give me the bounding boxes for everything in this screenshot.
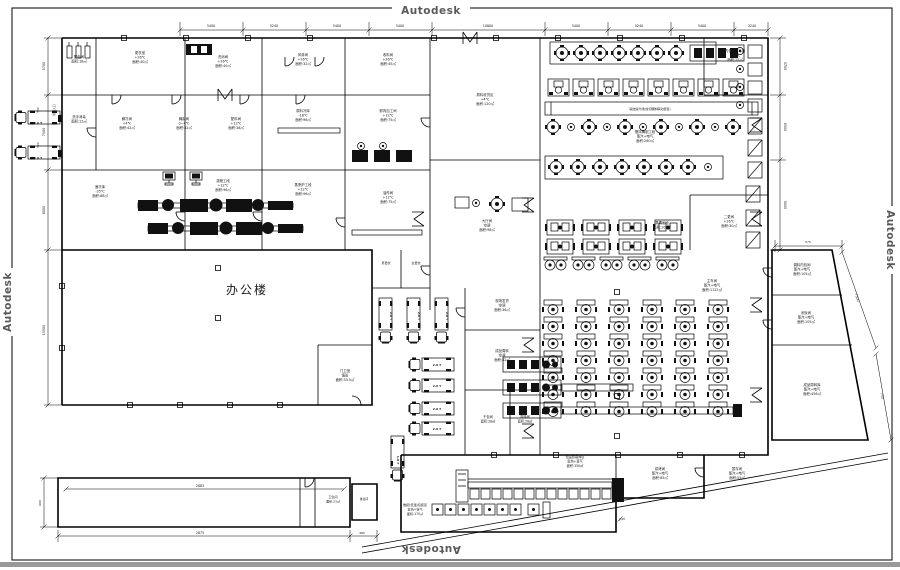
door: [421, 266, 430, 275]
mixer-machine: [673, 79, 694, 96]
dim: 7500: [854, 293, 861, 302]
double-door: [750, 298, 762, 312]
dim: 575: [805, 240, 811, 244]
crate: [528, 504, 539, 515]
room-label: 配料间+12℃面积:38㎡: [228, 116, 244, 130]
watermark-top: Autodesk: [401, 5, 461, 17]
dim: 750: [880, 393, 885, 399]
truck-label: 2.0 T: [34, 156, 43, 160]
crate: [445, 504, 456, 515]
sausage-line: [148, 222, 303, 236]
crate-tall: [543, 502, 550, 518]
crate: [484, 504, 495, 515]
wash-machine-detail: [201, 46, 207, 53]
room-label: 现场发货空调面积:36㎡: [494, 298, 510, 312]
production-columns: [542, 300, 729, 417]
doors: [87, 57, 772, 487]
spool-machine: [656, 257, 679, 270]
dim: 1685: [618, 517, 626, 522]
filling-lines: [503, 357, 742, 418]
room-label: 周转间面积:28㎡: [518, 414, 534, 424]
mixer-machine: [573, 79, 594, 96]
room-label: 烘烤间蒸汽+电气面积:85㎡: [652, 466, 669, 480]
double-door: [412, 212, 424, 226]
office-building-label: 办公楼: [226, 282, 268, 297]
cooker-unit: [581, 220, 611, 235]
truck-2t: [435, 298, 449, 344]
dim: 6500: [783, 123, 787, 131]
room-label: 干包间面积:28㎡: [481, 414, 497, 424]
crate: [458, 504, 469, 515]
processing-equipment: [67, 42, 528, 235]
door: [336, 218, 345, 227]
dock-bumper: [58, 150, 62, 157]
kettle-machine: [630, 45, 646, 61]
work-table: [278, 128, 340, 133]
truck-label: 2.0 T: [389, 312, 393, 321]
mixer-machine: [548, 79, 569, 96]
sausage-line: [138, 199, 293, 213]
dim: 500: [36, 107, 40, 113]
kettle-machine: [554, 45, 570, 61]
frying-machines: [352, 143, 412, 163]
dim: 7500: [42, 128, 46, 136]
truck-label: 1.0 T: [396, 456, 400, 465]
door: [285, 57, 294, 66]
dim: 9000: [783, 201, 787, 209]
kettle-machine: [614, 159, 630, 175]
spool-machine: [628, 257, 651, 270]
dock-label: 原料入口: [52, 104, 56, 115]
room-label: 原料收货区+4℃面积:120㎡: [476, 92, 494, 106]
dim: 3240: [748, 24, 756, 28]
kettle-machine: [611, 45, 627, 61]
cooker-unit: [617, 239, 647, 254]
door: [695, 468, 704, 477]
machine-column: [707, 300, 729, 417]
conveyor-end-unit: [612, 478, 624, 502]
spool-machine: [600, 257, 623, 270]
room-label: 暂存间蒸汽+电气面积:55㎡: [729, 466, 746, 480]
room-label: 米饭间蒸汽+电气面积:105㎡: [797, 310, 815, 324]
room-label: 门卫室值班面积:33.5㎡: [336, 368, 355, 382]
room-label: 内包材消毒间+26℃面积:25㎡: [725, 48, 746, 62]
door: [112, 95, 121, 104]
dimension-lines: [40, 22, 894, 542]
bottom-edge-bar: [0, 562, 900, 567]
filling-line: [503, 380, 633, 395]
kettle-machine: [548, 159, 564, 175]
room-label: 成品周转库蒸汽+电气面积:456㎡: [803, 382, 821, 396]
room-label: 蒸煮工段面积:108㎡: [653, 220, 671, 230]
room-label: 卫生间面积:23㎡: [326, 494, 340, 504]
truck-label: 2.0 T: [433, 363, 442, 367]
room-label: 蒸熏炉工段+12℃面积:96㎡: [295, 182, 313, 196]
truck-label: 2.0 T: [433, 427, 442, 431]
watermark-right: Autodesk: [884, 210, 896, 270]
conveyor-belt: [468, 482, 612, 488]
dim: 8000: [42, 206, 46, 214]
dim: 5400: [333, 24, 341, 28]
crate: [432, 504, 443, 515]
room-label: 搅拌腌制工段蒸汽+电气面积:260㎡: [635, 129, 656, 143]
kettle-machine: [592, 45, 608, 61]
door: [253, 212, 262, 221]
door: [305, 478, 314, 487]
spool-machine: [544, 257, 567, 270]
dim: 5400: [207, 24, 215, 28]
truck-2t: [409, 379, 455, 393]
room-label: 收料间+26℃面积:45㎡: [380, 52, 396, 66]
kettle-machine: [680, 159, 696, 175]
mixer-machine: [698, 79, 719, 96]
truck-2t: [409, 422, 455, 436]
columns: [60, 36, 747, 458]
door: [296, 95, 305, 104]
machine-label: 输送提升线(绞切腌制联动装置): [629, 106, 670, 111]
kettle-machine: [705, 164, 712, 171]
kettle-machine: [649, 45, 665, 61]
computer-station: [190, 172, 202, 185]
double-door: [750, 388, 762, 402]
mixer-machine: [598, 79, 619, 96]
crate: [510, 504, 521, 515]
room-label: 更衣室+26℃面积:40㎡: [132, 50, 148, 64]
spool-machine: [572, 257, 595, 270]
room-label: 大厅间空调面积:98㎡: [479, 218, 495, 232]
mixer-machine: [623, 79, 644, 96]
door: [421, 118, 430, 127]
dock-bumper: [58, 115, 62, 122]
door: [87, 128, 96, 137]
kettle-machine: [636, 159, 652, 175]
truck-2t: [409, 402, 455, 416]
crate: [497, 504, 508, 515]
door: [176, 212, 185, 221]
dim: 5400: [572, 24, 580, 28]
kettle-machine: [570, 159, 586, 175]
floorplan-canvas: AutodeskAutodeskAutodeskAutodesk办公楼54005…: [0, 0, 900, 570]
dim: 500: [36, 142, 40, 148]
crate: [471, 504, 482, 515]
room-label: 男更衣: [381, 260, 390, 265]
door: [240, 95, 249, 104]
cooker-unit: [545, 220, 575, 235]
dim: 600: [38, 500, 42, 506]
machine-column: [575, 300, 597, 417]
machine-column: [641, 300, 663, 417]
truck-2t: [379, 298, 393, 344]
machine-column: [674, 300, 696, 417]
room-label: 灌肠工段+12℃面积:96㎡: [215, 178, 231, 192]
door: [172, 95, 181, 104]
walls-inner: [62, 38, 852, 527]
dim: 15500: [42, 325, 46, 336]
dim: 5400: [396, 24, 404, 28]
double-door: [522, 338, 534, 352]
dim: 2883: [196, 484, 204, 488]
cooker-unit: [581, 239, 611, 254]
room-label: 腌制间0~4℃面积:42㎡: [176, 116, 192, 130]
room-label: 成品周转空调面积:42㎡: [494, 348, 510, 362]
east-wall-machines: [737, 45, 763, 248]
room-label: 油炸间+12℃面积:75㎡: [380, 190, 396, 204]
column-markers: [60, 36, 747, 458]
room-label: 解冻间+4℃面积:42㎡: [119, 116, 135, 130]
dim: 5700: [783, 62, 787, 70]
room-label: 鲜肉加工间+12℃面积:75㎡: [380, 108, 398, 122]
filling-line: [503, 403, 742, 418]
kettle-machine: [592, 159, 608, 175]
partition-walls: [62, 38, 852, 527]
cooker-unit: [545, 239, 575, 254]
room-label: 原料冷库-18℃面积:96㎡: [295, 108, 311, 122]
machine-column: [608, 300, 630, 417]
truck-2t: [407, 298, 421, 344]
room-label: 主车间蒸汽+电气面积:1122㎡: [702, 278, 723, 292]
dim: 380: [359, 531, 365, 535]
room-label: 速冻库-35℃面积:88㎡: [92, 184, 108, 198]
truck-2t: [409, 358, 455, 372]
walls-outer: [58, 38, 868, 532]
cad-sheet: AutodeskAutodeskAutodeskAutodesk办公楼54005…: [0, 0, 900, 570]
cooker-unit: [653, 239, 683, 254]
double-door: [522, 424, 534, 438]
room-label: 风淋间+26℃面积:32㎡: [295, 52, 311, 66]
dim: 10800: [483, 24, 494, 28]
wash-machine: [186, 44, 212, 55]
computer-station: [163, 172, 175, 185]
room-label: 二更间+26℃面积:30㎡: [721, 214, 737, 228]
kettle-machine: [668, 45, 684, 61]
room-label: 恒温包装间区复热+蒸气面积:350㎡: [565, 454, 585, 468]
kettle-machine: [573, 45, 589, 61]
mixer-machine: [648, 79, 669, 96]
watermark-bottom: Autodesk: [401, 543, 461, 555]
truck-label: 2.0 T: [34, 121, 43, 125]
door: [352, 396, 361, 405]
dim: 5240: [635, 24, 643, 28]
hall-entry-machines: [455, 196, 528, 212]
dim: 2875: [196, 531, 204, 535]
truck-label: 2.0 T: [433, 407, 442, 411]
room-label: 洗手消毒面积:12㎡: [71, 114, 87, 124]
packing-conveyor: [432, 470, 624, 518]
watermark-left: Autodesk: [2, 272, 14, 332]
feeder-detail: [458, 474, 466, 486]
room-label: 散装(低温)包装区复热+蒸气面积:170㎡: [403, 502, 427, 516]
room-label: 洗消间+26℃面积:40㎡: [215, 54, 231, 68]
dim: 5700: [42, 62, 46, 70]
truck-label: 2.0 T: [445, 312, 449, 321]
conveyor-buckets: [470, 489, 611, 499]
room-label: 女更衣: [411, 260, 420, 265]
door: [456, 308, 465, 317]
main-building-outline: [62, 38, 768, 532]
sheet-border: [0, 5, 900, 567]
dim: 5240: [270, 24, 278, 28]
room-label: 调料内包间蒸汽+电气面积:105㎡: [793, 262, 811, 276]
wash-machine-detail: [191, 46, 197, 53]
room-label: 淋浴间: [360, 497, 369, 501]
dim: 5400: [698, 24, 706, 28]
truck-label: 2.0 T: [417, 312, 421, 321]
work-table: [352, 230, 422, 235]
door: [315, 57, 324, 66]
office-outline: [62, 38, 372, 405]
kettle-machine: [658, 159, 674, 175]
cooker-unit: [617, 220, 647, 235]
truck-label: 2.0 T: [433, 384, 442, 388]
